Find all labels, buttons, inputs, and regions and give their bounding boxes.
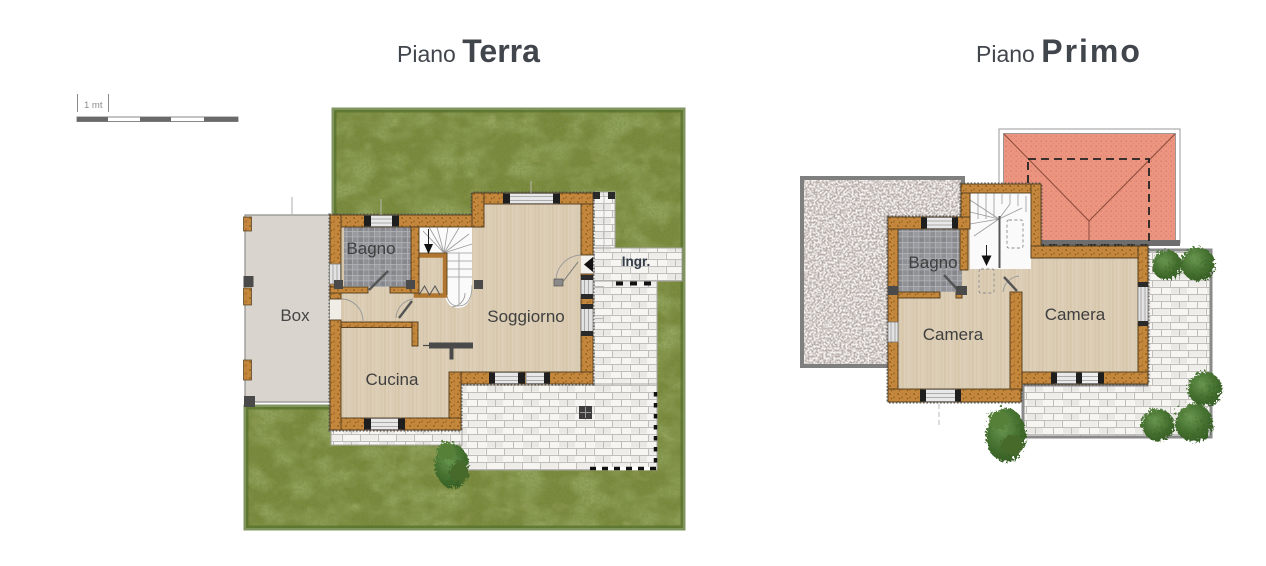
svg-text:Bagno: Bagno bbox=[346, 239, 395, 258]
svg-text:Piano Terra: Piano Terra bbox=[397, 33, 540, 69]
svg-text:Cucina: Cucina bbox=[366, 370, 419, 389]
svg-text:Ingr.: Ingr. bbox=[622, 254, 651, 269]
svg-text:Camera: Camera bbox=[1045, 305, 1106, 324]
svg-text:Soggiorno: Soggiorno bbox=[487, 307, 565, 326]
svg-text:Bagno: Bagno bbox=[908, 253, 957, 272]
svg-text:1 mt: 1 mt bbox=[84, 100, 103, 111]
svg-text:Camera: Camera bbox=[923, 325, 984, 344]
svg-text:Piano Primo: Piano Primo bbox=[976, 33, 1142, 69]
svg-text:Box: Box bbox=[280, 306, 310, 325]
